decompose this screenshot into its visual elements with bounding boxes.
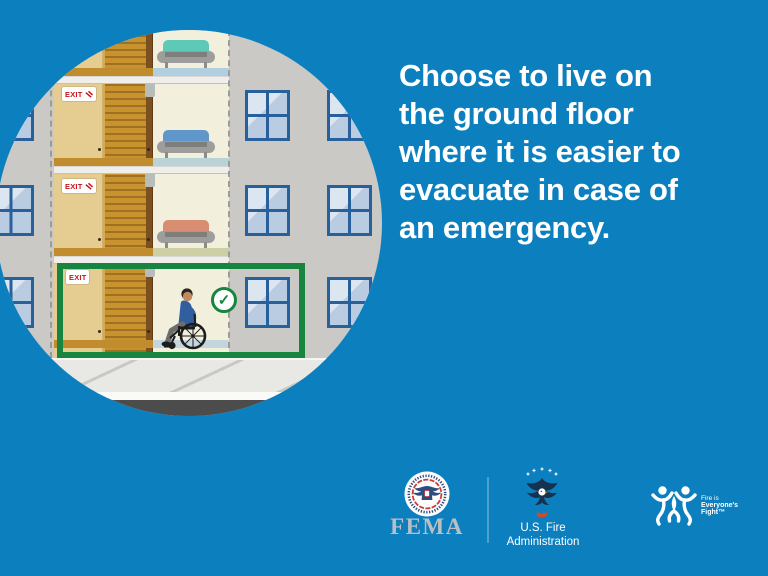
ground-floor-highlight	[57, 263, 305, 358]
usfa-eagle-icon	[522, 466, 562, 522]
couch-blue	[157, 130, 215, 158]
floor-band	[54, 68, 229, 76]
stairs-down-icon	[84, 182, 93, 191]
street	[0, 400, 382, 416]
fief-wordmark: Fire is Everyone's Fight™	[701, 495, 738, 516]
door-closer	[145, 174, 155, 187]
window	[245, 185, 290, 236]
footer-divider	[487, 477, 489, 543]
exit-sign: EXIT	[62, 179, 96, 193]
window	[245, 90, 290, 141]
exit-sign: EXIT	[62, 87, 96, 101]
window	[0, 185, 34, 236]
window	[327, 185, 372, 236]
couch-teal	[157, 40, 215, 68]
door-closer	[145, 84, 155, 97]
fema-wordmark: FEMA	[389, 514, 465, 540]
stairs-down-icon	[84, 90, 93, 99]
window	[327, 90, 372, 141]
floor-band	[54, 158, 229, 166]
window	[0, 277, 34, 328]
floor-slab	[54, 76, 229, 84]
curb	[0, 392, 382, 400]
exit-sign-label: EXIT	[65, 90, 82, 99]
dhs-seal-icon	[404, 471, 450, 517]
window	[0, 90, 34, 141]
couch-pink	[157, 220, 215, 248]
headline-text: Choose to live on the ground floor where…	[399, 57, 761, 247]
sidewalk	[0, 358, 382, 392]
floor-slab	[54, 166, 229, 174]
usfa-wordmark: U.S. Fire Administration	[499, 522, 587, 549]
fief-figures-icon	[650, 485, 698, 527]
cut-line-left	[50, 30, 52, 358]
exit-sign-label: EXIT	[65, 182, 82, 191]
psa-poster: EXIT EXIT	[0, 0, 768, 576]
illustration-circle: EXIT EXIT	[0, 30, 382, 416]
window	[327, 277, 372, 328]
floor-band	[54, 248, 229, 256]
